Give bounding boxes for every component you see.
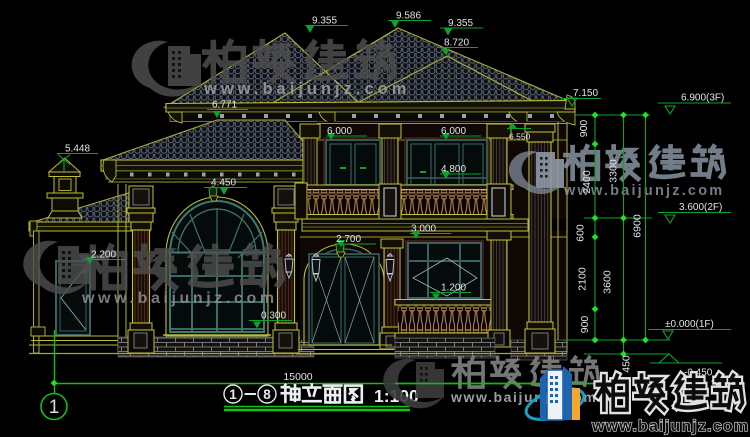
- svg-text:2.700: 2.700: [336, 234, 361, 245]
- svg-text:1.200: 1.200: [441, 283, 466, 294]
- svg-text:7.150: 7.150: [573, 88, 598, 99]
- svg-text:900: 900: [578, 120, 590, 138]
- svg-text:450: 450: [621, 355, 633, 373]
- svg-text:4.800: 4.800: [441, 164, 466, 175]
- svg-text:5.448: 5.448: [65, 144, 90, 155]
- svg-text:2.200: 2.200: [91, 250, 116, 261]
- svg-text:0.300: 0.300: [261, 311, 286, 322]
- svg-text:9.355: 9.355: [312, 16, 337, 27]
- svg-text:6.000: 6.000: [441, 126, 466, 137]
- svg-text:1: 1: [49, 397, 60, 418]
- svg-text:2100: 2100: [577, 267, 589, 291]
- svg-text:6900: 6900: [632, 214, 644, 238]
- svg-text:6.000: 6.000: [327, 126, 352, 137]
- svg-text:±0.000(1F): ±0.000(1F): [665, 319, 714, 330]
- svg-text:8.720: 8.720: [444, 38, 469, 49]
- svg-text:4.450: 4.450: [211, 178, 236, 189]
- svg-text:8: 8: [263, 387, 271, 402]
- svg-text:2400: 2400: [581, 170, 593, 194]
- svg-text:9.355: 9.355: [448, 18, 473, 29]
- svg-text:900: 900: [579, 316, 591, 334]
- svg-text:3300: 3300: [608, 159, 620, 183]
- svg-text:6.900(3F): 6.900(3F): [681, 93, 724, 104]
- svg-text:www.baijunjz.com: www.baijunjz.com: [81, 290, 278, 307]
- svg-text:6.771: 6.771: [212, 100, 237, 111]
- svg-text:3.000: 3.000: [411, 224, 436, 235]
- svg-text:600: 600: [575, 224, 587, 242]
- svg-text:9.586: 9.586: [396, 11, 421, 22]
- svg-text:www.baijunjz.com: www.baijunjz.com: [591, 418, 749, 435]
- svg-text:3600: 3600: [602, 270, 614, 294]
- svg-text:3.600(2F): 3.600(2F): [679, 202, 722, 213]
- svg-text:15000: 15000: [283, 371, 312, 383]
- svg-text:www.baijunjz.com: www.baijunjz.com: [203, 80, 410, 98]
- svg-text:1: 1: [229, 387, 237, 402]
- svg-text:6.550: 6.550: [509, 132, 531, 142]
